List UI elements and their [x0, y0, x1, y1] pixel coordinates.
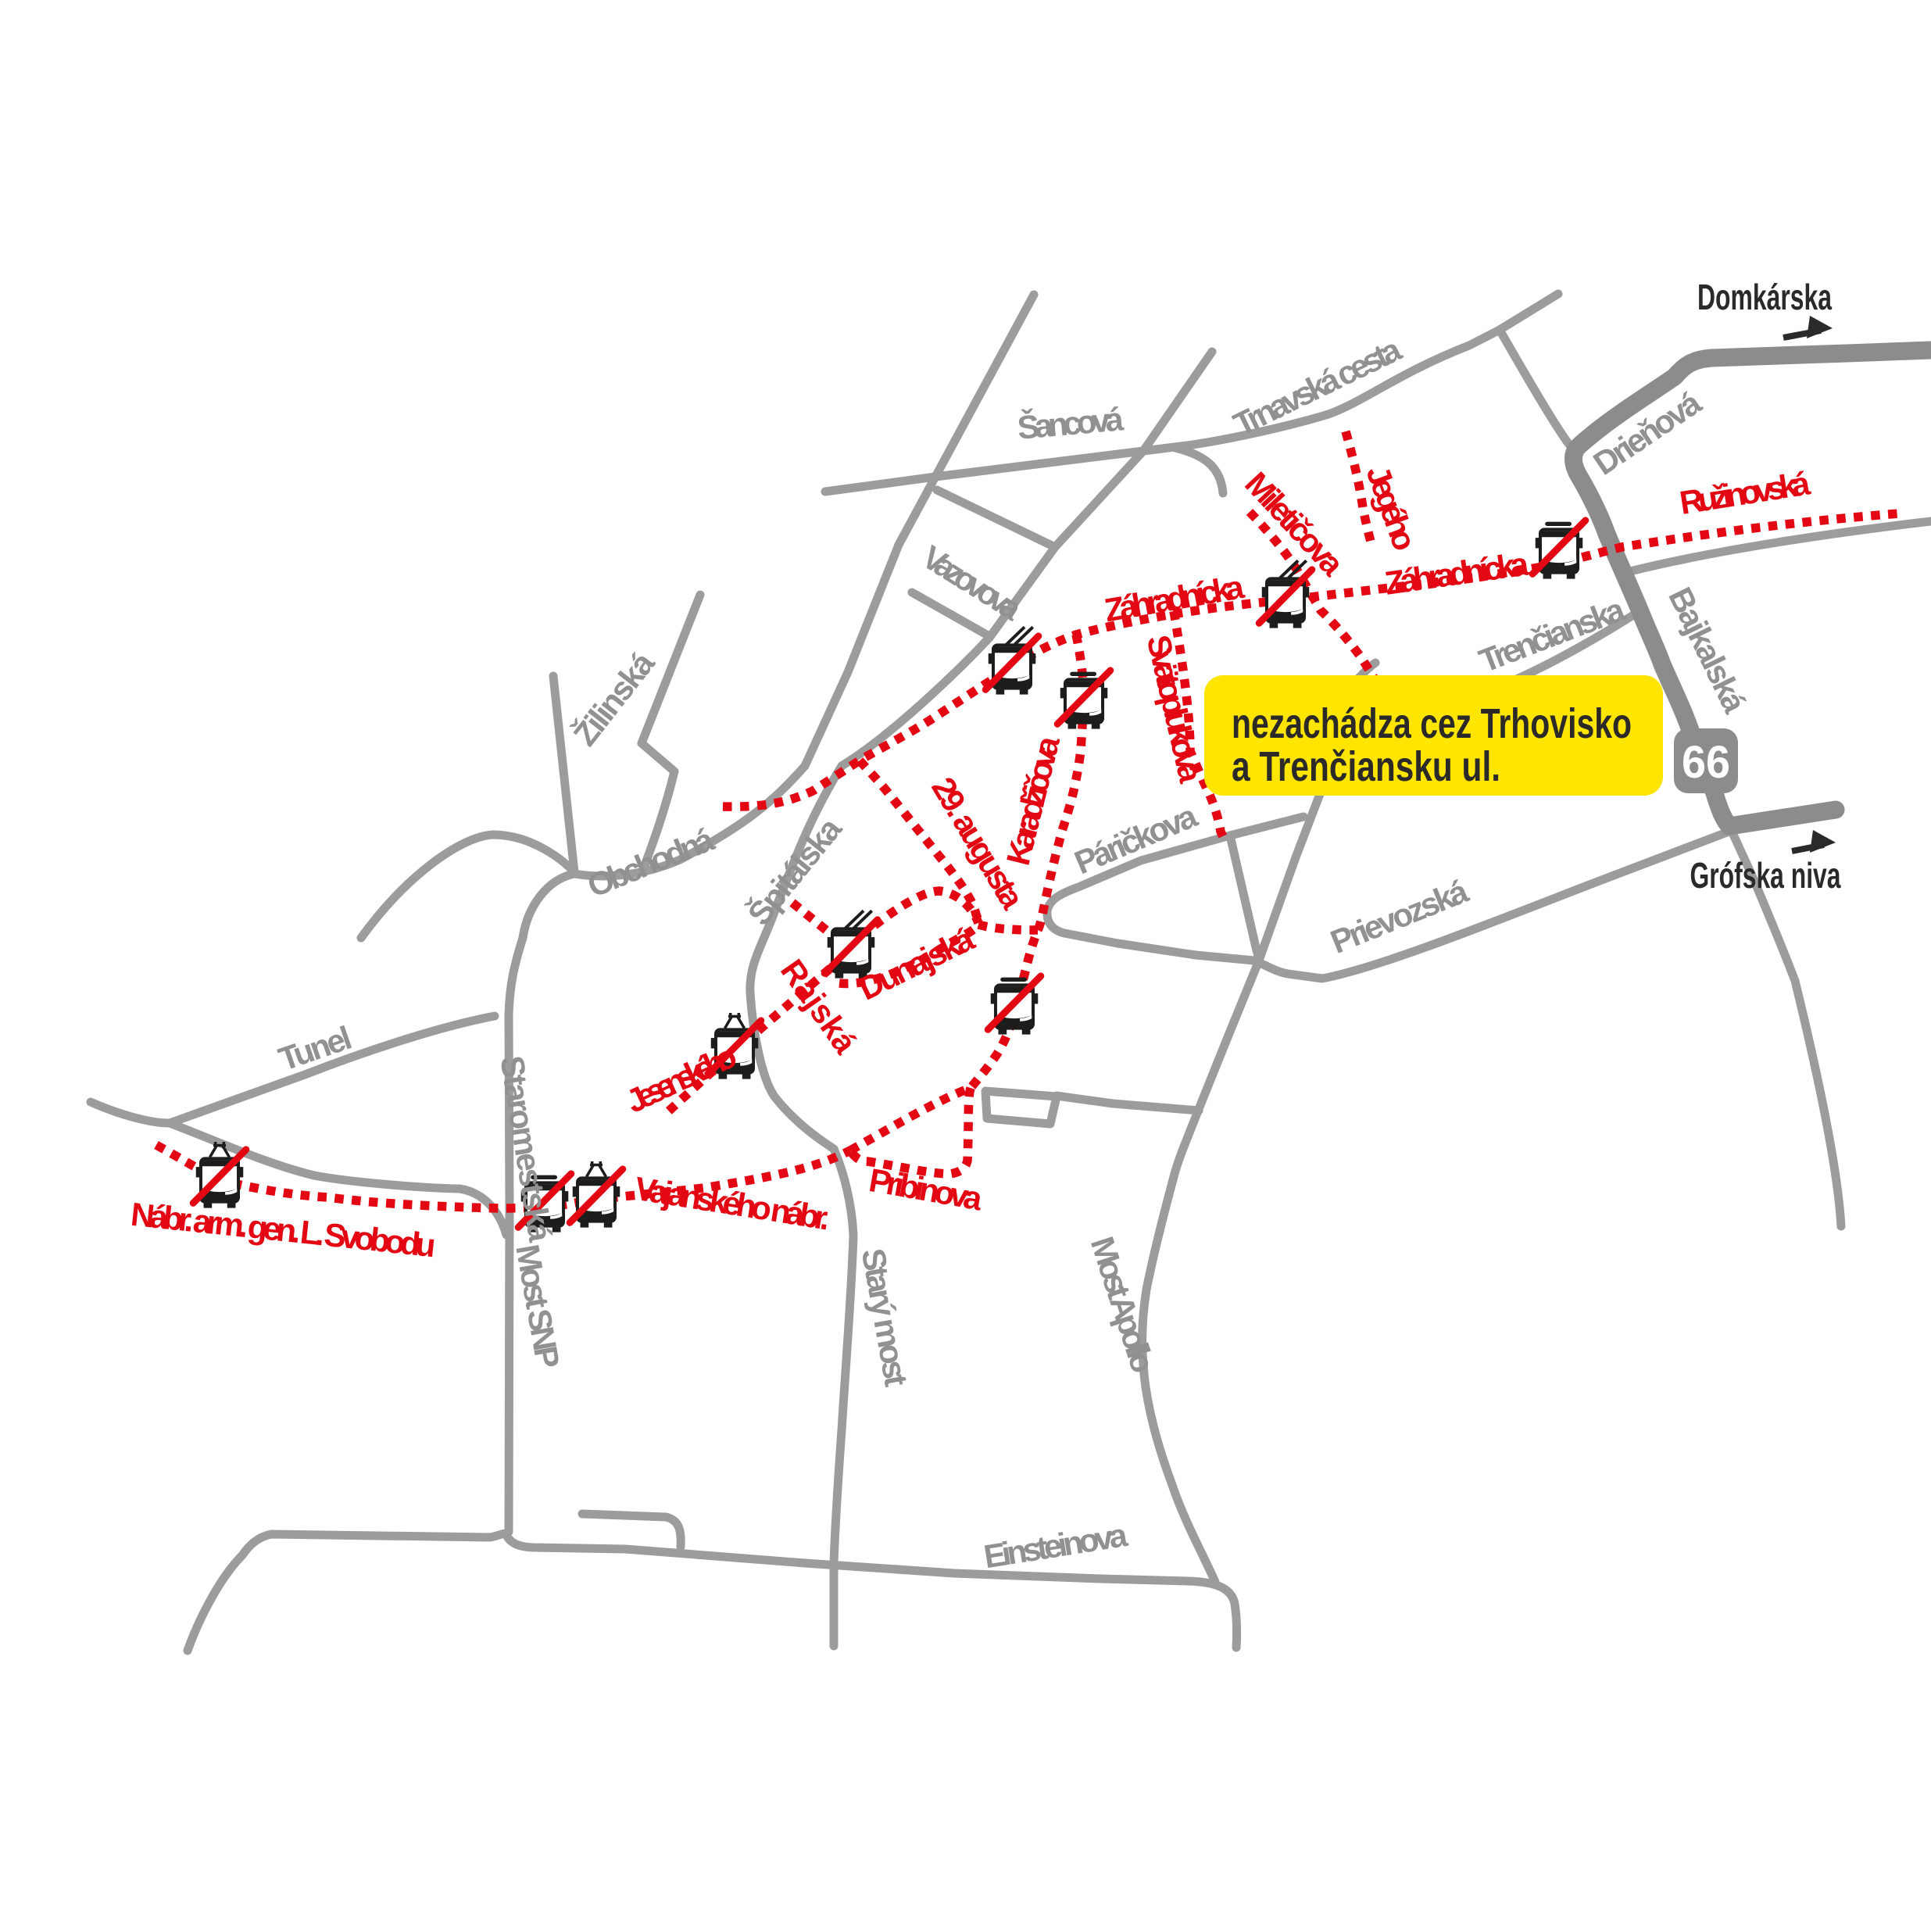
svg-text:Šancová: Šancová: [1016, 399, 1125, 446]
svg-text:Einsteinova: Einsteinova: [982, 1516, 1131, 1575]
svg-text:Vazovova: Vazovova: [916, 538, 1028, 628]
svg-text:Svätoplukova: Svätoplukova: [1140, 631, 1210, 786]
svg-text:Ružinovská: Ružinovská: [1677, 464, 1813, 521]
svg-text:Jegého: Jegého: [1359, 460, 1423, 555]
svg-text:Záhradnícka: Záhradnícka: [1382, 545, 1531, 601]
svg-text:Karadžičova: Karadžičova: [999, 732, 1067, 869]
svg-text:Grófska niva: Grófska niva: [1690, 855, 1841, 896]
svg-text:66: 66: [1682, 737, 1730, 788]
svg-text:Dunajská: Dunajská: [853, 920, 980, 1007]
svg-text:Obchodná: Obchodná: [582, 821, 720, 905]
svg-text:Most SNP: Most SNP: [509, 1242, 567, 1372]
svg-text:Jesenského: Jesenského: [620, 1037, 742, 1120]
svg-text:Prievozská: Prievozská: [1325, 872, 1474, 961]
svg-text:nezachádza cez Trhovisko: nezachádza cez Trhovisko: [1232, 700, 1632, 747]
svg-text:Páričkova: Páričkova: [1069, 797, 1203, 882]
svg-text:Špitálska: Špitálska: [740, 810, 849, 932]
svg-text:a Trenčiansku ul.: a Trenčiansku ul.: [1232, 743, 1500, 790]
svg-text:Starý most: Starý most: [855, 1246, 915, 1389]
svg-text:Domkárska: Domkárska: [1697, 277, 1832, 317]
